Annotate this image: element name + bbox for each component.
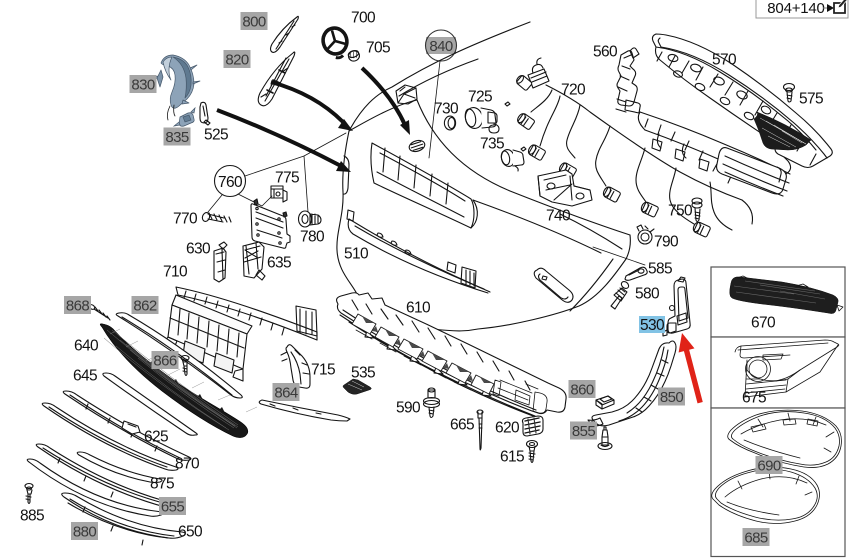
svg-text:720: 720 xyxy=(561,81,586,98)
svg-text:585: 585 xyxy=(648,260,672,277)
svg-text:625: 625 xyxy=(144,428,168,445)
svg-text:535: 535 xyxy=(351,364,375,381)
svg-text:580: 580 xyxy=(635,285,660,302)
svg-text:590: 590 xyxy=(396,399,421,416)
svg-text:804+140: 804+140 xyxy=(767,0,824,17)
svg-text:630: 630 xyxy=(186,240,211,257)
svg-text:830: 830 xyxy=(131,76,154,93)
svg-text:775: 775 xyxy=(275,169,299,186)
svg-text:770: 770 xyxy=(173,210,198,227)
svg-text:800: 800 xyxy=(242,13,265,30)
svg-text:685: 685 xyxy=(744,529,767,546)
svg-text:790: 790 xyxy=(654,233,679,250)
svg-text:710: 710 xyxy=(163,263,188,280)
svg-text:560: 560 xyxy=(593,43,618,60)
svg-text:868: 868 xyxy=(66,297,89,314)
svg-text:740: 740 xyxy=(546,207,571,224)
svg-text:850: 850 xyxy=(660,389,683,406)
svg-text:620: 620 xyxy=(495,419,520,436)
svg-text:864: 864 xyxy=(274,384,297,401)
svg-text:635: 635 xyxy=(267,254,291,271)
svg-text:750: 750 xyxy=(668,202,693,219)
svg-text:510: 510 xyxy=(344,245,369,262)
svg-text:725: 725 xyxy=(468,88,492,105)
svg-text:690: 690 xyxy=(757,457,780,474)
svg-text:575: 575 xyxy=(799,90,823,107)
svg-text:760: 760 xyxy=(218,174,243,191)
svg-text:735: 735 xyxy=(480,135,504,152)
svg-text:525: 525 xyxy=(204,126,228,143)
svg-text:862: 862 xyxy=(133,297,156,314)
svg-text:880: 880 xyxy=(73,523,96,540)
svg-text:640: 640 xyxy=(74,337,99,354)
svg-text:530: 530 xyxy=(640,317,665,334)
svg-text:670: 670 xyxy=(751,314,776,331)
svg-text:835: 835 xyxy=(165,129,188,146)
svg-text:665: 665 xyxy=(450,416,474,433)
svg-text:866: 866 xyxy=(153,352,176,369)
svg-text:840: 840 xyxy=(429,38,452,55)
svg-text:715: 715 xyxy=(311,361,335,378)
svg-text:875: 875 xyxy=(150,475,174,492)
svg-text:615: 615 xyxy=(500,448,524,465)
svg-text:655: 655 xyxy=(161,498,184,515)
svg-text:780: 780 xyxy=(300,228,325,245)
svg-text:700: 700 xyxy=(351,9,376,26)
svg-text:855: 855 xyxy=(572,423,595,440)
svg-text:610: 610 xyxy=(406,299,431,316)
svg-text:860: 860 xyxy=(570,381,593,398)
svg-text:705: 705 xyxy=(366,39,390,56)
svg-text:570: 570 xyxy=(712,51,737,68)
svg-text:870: 870 xyxy=(175,455,200,472)
svg-text:645: 645 xyxy=(73,367,97,384)
svg-text:730: 730 xyxy=(434,100,459,117)
svg-text:650: 650 xyxy=(178,523,203,540)
svg-text:885: 885 xyxy=(20,507,44,524)
svg-text:675: 675 xyxy=(742,389,766,406)
svg-text:820: 820 xyxy=(225,51,248,68)
